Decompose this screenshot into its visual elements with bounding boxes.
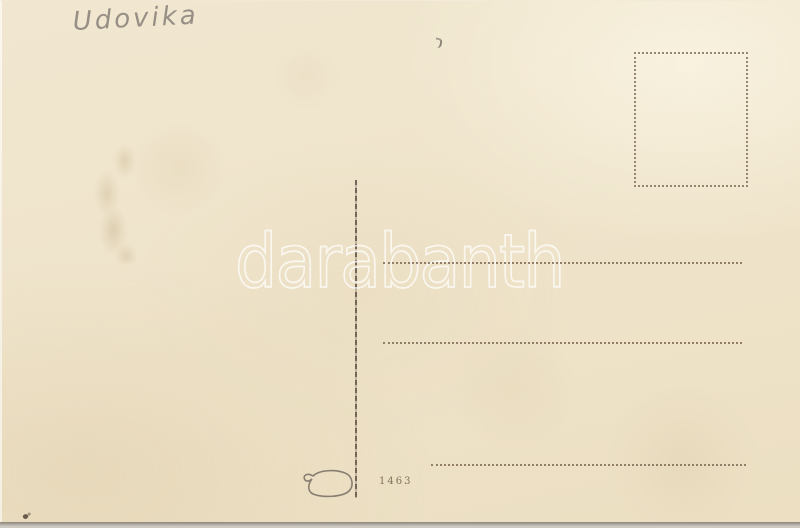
postcard-scan: Udovika darabanth 1463 bbox=[0, 0, 800, 528]
dirt-speck bbox=[22, 513, 29, 520]
divider-line bbox=[355, 180, 357, 498]
postcard-back: Udovika darabanth 1463 bbox=[0, 0, 800, 523]
address-line-2 bbox=[383, 342, 742, 344]
plate-number: 1463 bbox=[379, 476, 412, 487]
pencil-scribble-oval bbox=[301, 465, 355, 501]
handwritten-name: Udovika bbox=[72, 0, 199, 37]
paper-stain bbox=[80, 147, 144, 263]
address-line-1 bbox=[383, 262, 742, 264]
pencil-tick-mark bbox=[434, 37, 443, 48]
stamp-box bbox=[634, 52, 748, 187]
scan-background-edge bbox=[0, 522, 800, 528]
address-line-3 bbox=[431, 464, 746, 466]
